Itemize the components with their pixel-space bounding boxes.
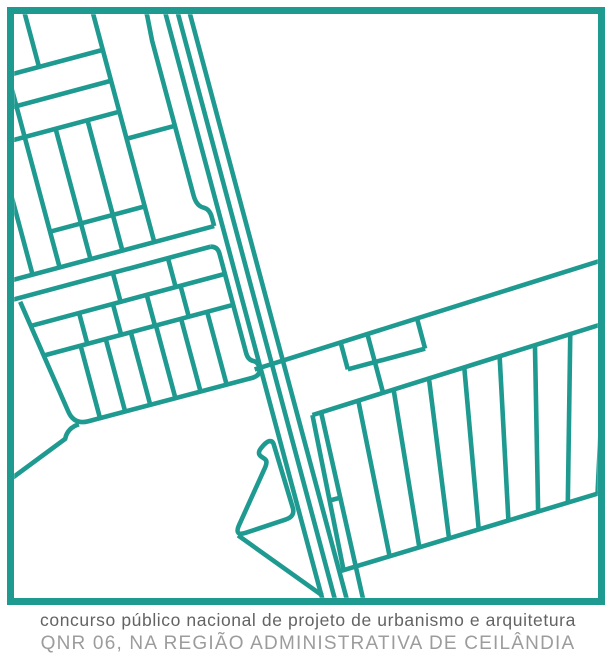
- avenue-road-lines: [153, 0, 385, 606]
- small-square-parcels: [340, 318, 434, 400]
- right-strip-lot-block: [345, 312, 616, 556]
- middle-left-block-cluster: [0, 243, 272, 495]
- caption-block: concurso público nacional de projeto de …: [0, 606, 616, 656]
- top-left-block-cluster: [0, 0, 214, 303]
- street-map-drawing: [0, 0, 616, 606]
- street-network: [0, 0, 616, 606]
- caption-line-2: QNR 06, NA REGIÃO ADMINISTRATIVA DE CEIL…: [0, 632, 616, 656]
- triangle-traffic-island: [217, 438, 323, 606]
- caption-line-1: concurso público nacional de projeto de …: [0, 609, 616, 631]
- map-figure: [0, 0, 616, 606]
- poster: concurso público nacional de projeto de …: [0, 0, 616, 670]
